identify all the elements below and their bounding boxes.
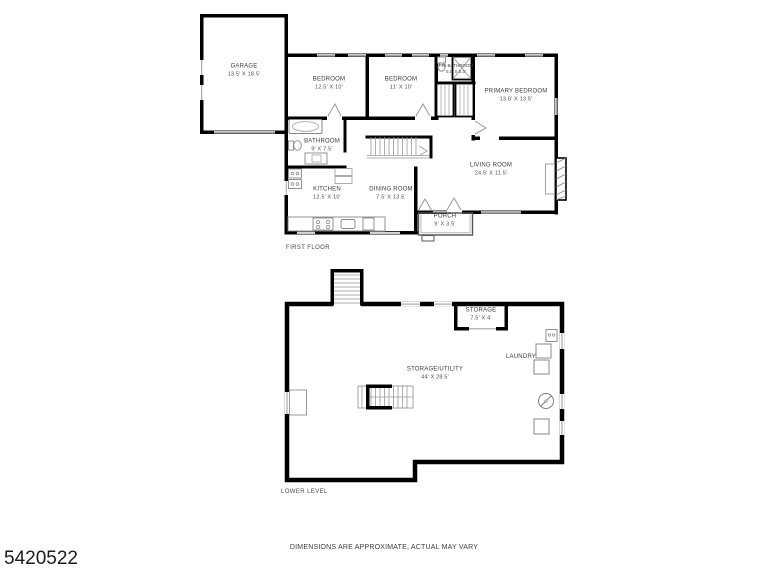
room-label-bedroom-2: BEDROOM 11' X 10' [385, 77, 417, 92]
room-label-bedroom-1: BEDROOM 12.5' X 10' [313, 77, 345, 92]
room-label-living-room: LIVING ROOM 24.5' X 11.5' [470, 163, 512, 178]
room-name: KITCHEN [313, 187, 341, 195]
room-name: BEDROOM [385, 77, 417, 85]
room-label-dining-room: DINING ROOM 7.5' X 13.5' [369, 187, 413, 202]
room-name: BEDROOM [313, 77, 345, 85]
floor-plan-page: GARAGE 13.5' X 18.5' BEDROOM 12.5' X 10'… [0, 0, 768, 576]
room-dims: 12.5' X 10' [313, 194, 341, 201]
room-dims: 7.5' X 13.5' [369, 194, 413, 201]
room-name: DINING ROOM [369, 187, 413, 195]
room-dims: 13.0' X 13.5' [485, 96, 548, 103]
room-label-storage: STORAGE 7.5' X 4' [466, 308, 497, 323]
room-name: LIVING ROOM [470, 163, 512, 171]
room-dims: 9' X 3.5' [434, 221, 457, 228]
room-label-laundry: LAUNDRY [506, 354, 536, 362]
room-dims: 7.5' X 4' [466, 315, 497, 322]
room-label-garage: GARAGE 13.5' X 18.5' [228, 64, 261, 79]
room-name: STORAGE/UTILITY [407, 367, 463, 375]
room-name: PORCH [434, 214, 457, 222]
room-name: PRI BATHROOM [439, 63, 473, 69]
room-dims: 5.5' X 5.5' [439, 69, 473, 75]
first-floor-title: FIRST FLOOR [286, 245, 330, 251]
room-name: LAUNDRY [506, 354, 536, 362]
room-dims: 9' X 7.5' [304, 146, 340, 153]
listing-id: 5420522 [4, 548, 78, 570]
labels-overlay: GARAGE 13.5' X 18.5' BEDROOM 12.5' X 10'… [0, 0, 768, 576]
room-dims: 44' X 28.5' [407, 374, 463, 381]
room-dims: 12.5' X 10' [313, 84, 345, 91]
room-name: GARAGE [228, 64, 261, 72]
room-dims: 24.5' X 11.5' [470, 170, 512, 177]
disclaimer-text: DIMENSIONS ARE APPROXIMATE, ACTUAL MAY V… [290, 544, 478, 551]
room-label-pri-bathroom: PRI BATHROOM 5.5' X 5.5' [439, 63, 473, 75]
room-name: STORAGE [466, 308, 497, 316]
room-label-bathroom: BATHROOM 9' X 7.5' [304, 139, 340, 154]
room-name: BATHROOM [304, 139, 340, 147]
room-dims: 11' X 10' [385, 84, 417, 91]
room-label-storage-utility: STORAGE/UTILITY 44' X 28.5' [407, 367, 463, 382]
room-dims: 13.5' X 18.5' [228, 71, 261, 78]
lower-level-title: LOWER LEVEL [281, 489, 328, 495]
room-label-primary-bedroom: PRIMARY BEDROOM 13.0' X 13.5' [485, 89, 548, 104]
room-name: PRIMARY BEDROOM [485, 89, 548, 97]
room-label-porch: PORCH 9' X 3.5' [434, 214, 457, 229]
room-label-kitchen: KITCHEN 12.5' X 10' [313, 187, 341, 202]
